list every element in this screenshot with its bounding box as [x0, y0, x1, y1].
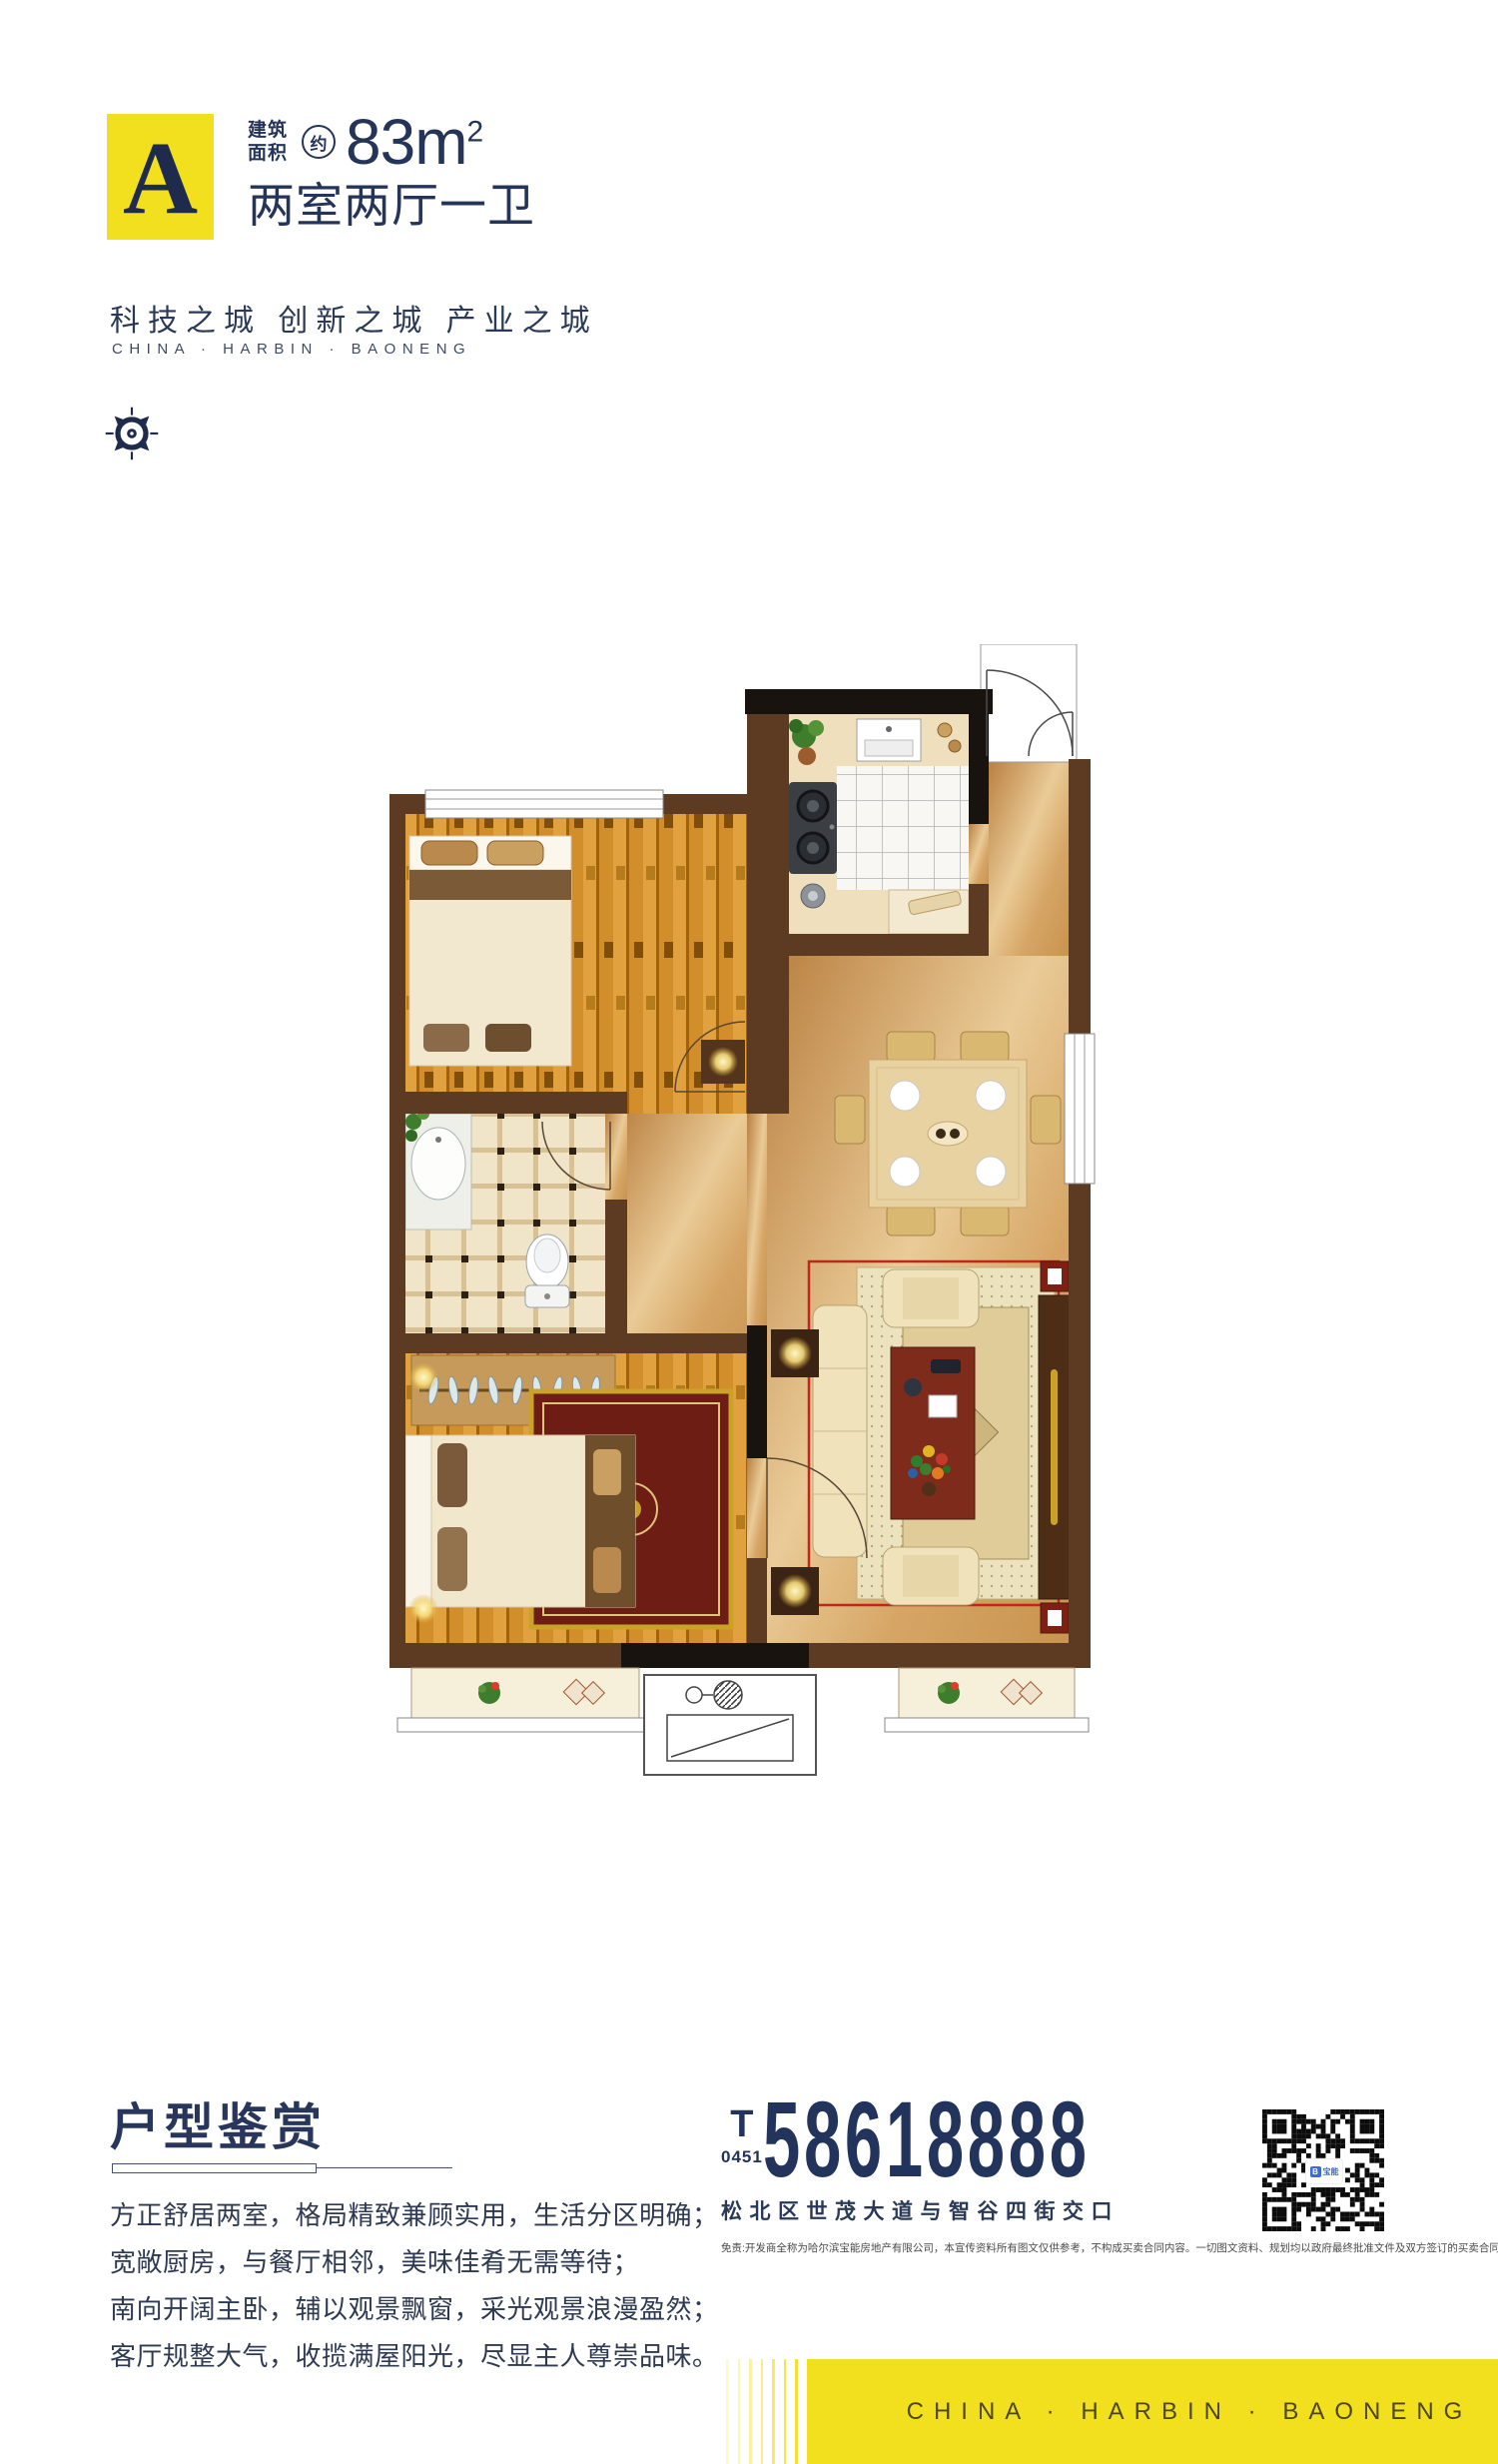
section-bar — [112, 2163, 317, 2173]
floor-plan — [389, 644, 1099, 1783]
description-line: 南向开阔主卧，辅以观景飘窗，采光观景浪漫盈然； — [110, 2296, 689, 2323]
area-row: 建筑面积 约 83m2 — [248, 110, 807, 174]
description-line: 方正舒居两室，格局精致兼顾实用，生活分区明确； — [110, 2202, 689, 2229]
area-value: 83m2 — [346, 110, 482, 174]
footer-brand: CHINA · HARBIN · BAONENG — [911, 2359, 1468, 2464]
phone-number: 58618888 — [763, 2091, 1091, 2187]
tagline-cn: 科技之城 创新之城 产业之城 — [110, 296, 598, 340]
kitchen-sink — [857, 719, 921, 761]
qr-logo-icon: B — [1310, 2166, 1321, 2177]
entry-floor — [989, 759, 1069, 956]
footer-stripes — [726, 2359, 807, 2464]
qr-logo-text: 宝能 — [1323, 2166, 1339, 2177]
section-title: 户型鉴赏 — [110, 2087, 326, 2159]
bathroom-vanity — [405, 1108, 471, 1230]
tel-t: T — [730, 2107, 753, 2141]
bedroom2-bed — [409, 836, 571, 1066]
living-set — [771, 1261, 1071, 1633]
master-lamp-1 — [408, 1362, 438, 1392]
toilet — [525, 1234, 569, 1307]
ac-platform — [644, 1675, 816, 1775]
section-line — [317, 2167, 452, 2168]
address: 松北区世茂大道与智谷四街交口 — [721, 2195, 1120, 2225]
layout-title: 两室两厅一卫 — [248, 182, 807, 229]
master-bed — [405, 1435, 635, 1607]
description-line: 客厅规整大气，收揽满屋阳光，尽显主人尊崇品味。 — [110, 2343, 689, 2370]
kitchen-floor — [837, 766, 969, 890]
flyer-page: A 建筑面积 约 83m2 两室两厅一卫 科技之城 创新之城 产业之城 CHIN… — [0, 0, 1498, 2464]
hall-floor — [627, 1092, 767, 1353]
unit-letter: A — [123, 127, 198, 231]
entry-vestibule — [981, 644, 1077, 762]
description-line: 宽敞厨房，与餐厅相邻，美味佳肴无需等待； — [110, 2249, 689, 2276]
phone-prefix: T 0451 — [721, 2107, 763, 2167]
qr-center-logo: B 宝能 — [1306, 2159, 1342, 2183]
area-code: 0451 — [721, 2147, 763, 2167]
area-label: 建筑面积 — [248, 119, 288, 165]
sill-plant-1 — [478, 1682, 500, 1704]
description-paragraphs: 方正舒居两室，格局精致兼顾实用，生活分区明确； 宽敞厨房，与餐厅相邻，美味佳肴无… — [110, 2202, 689, 2390]
master-lamp-2 — [408, 1594, 438, 1624]
approx-circle: 约 — [302, 125, 336, 159]
bedroom2-nightstand — [701, 1040, 745, 1084]
kitchen-stove — [789, 782, 837, 874]
unit-badge: A — [107, 114, 214, 240]
compass-icon — [104, 406, 160, 461]
dining-set — [835, 1032, 1061, 1235]
qr-code: B 宝能 — [1262, 2109, 1384, 2231]
disclaimer: 免责:开发商全称为哈尔滨宝能房地产有限公司，本宣传资料所有图文仅供参考，不构成买… — [721, 2240, 1440, 2255]
tagline-en: CHINA · HARBIN · BAONENG — [112, 341, 471, 358]
sill-plant-2 — [938, 1682, 960, 1704]
unit-info: 建筑面积 约 83m2 两室两厅一卫 — [248, 110, 807, 229]
phone-block: T 0451 58618888 — [721, 2091, 1290, 2187]
footer-band: CHINA · HARBIN · BAONENG — [726, 2359, 1498, 2464]
